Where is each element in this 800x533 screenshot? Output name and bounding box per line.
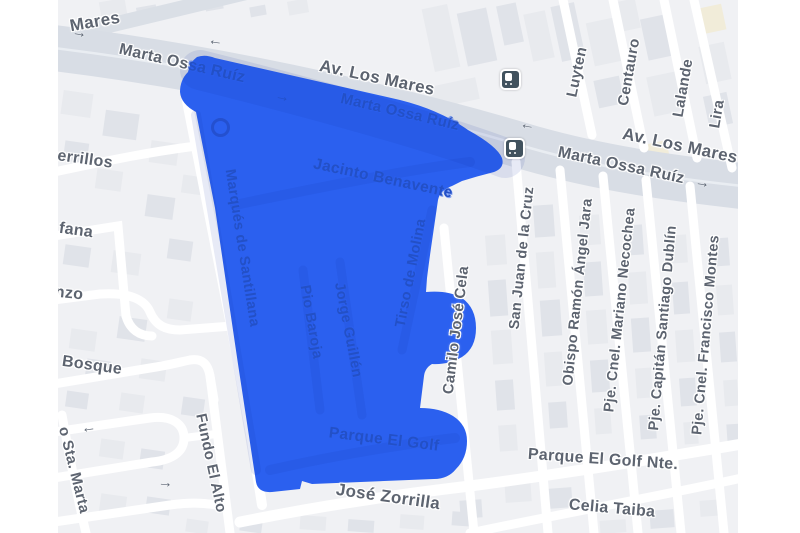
bus-stop-icon[interactable]	[504, 138, 525, 159]
map-graphics	[58, 0, 738, 533]
screenshot: Mares Marta Ossa Ruíz Av. Los Mares Av. …	[0, 0, 800, 533]
map-canvas[interactable]: Mares Marta Ossa Ruíz Av. Los Mares Av. …	[58, 0, 738, 533]
transit-ring-icon[interactable]	[211, 118, 230, 137]
bus-stop-icon[interactable]	[500, 69, 521, 90]
